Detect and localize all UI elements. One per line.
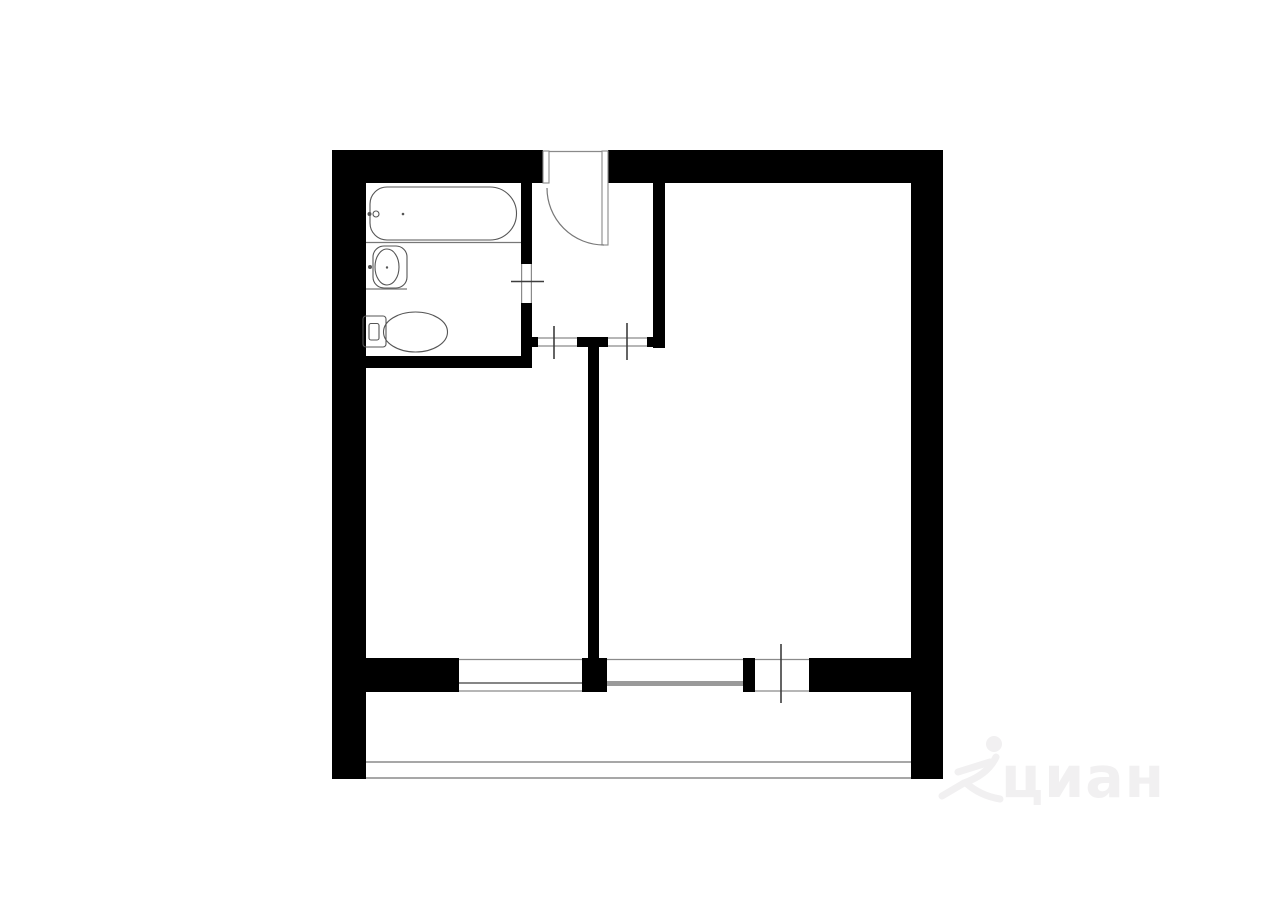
toilet-tank — [363, 316, 386, 347]
bathroom-fixtures — [363, 187, 521, 352]
bathtub-faucet-icon — [373, 211, 379, 217]
floor-plan-drawing: циан — [0, 0, 1280, 905]
floor-plan-page: циан — [0, 0, 1280, 905]
hallway-bottom-wall-b — [577, 337, 608, 347]
toilet-tank-inner — [369, 324, 379, 341]
logo-leg-left — [942, 783, 964, 796]
bathroom-door-opening — [511, 264, 544, 303]
watermark-text: циан — [1001, 745, 1165, 811]
hallway-bottom-wall-a — [532, 337, 538, 347]
hall-door-opening-left — [538, 326, 577, 359]
washbasin-drain-dot — [386, 266, 388, 268]
window-opening-2 — [607, 660, 743, 687]
window2-sill-band — [607, 681, 743, 686]
bathtub-drain-dot — [402, 213, 405, 216]
bathtub — [370, 187, 517, 240]
entrance-door-leaf — [602, 151, 608, 245]
bathtub-tap-icon — [368, 212, 372, 216]
bottom-wall-segment-left — [366, 658, 459, 692]
bathroom-bottom-wall — [332, 356, 532, 368]
bottom-wall-pier-1 — [582, 658, 607, 692]
bottom-wall-pier-2 — [743, 658, 755, 692]
entrance-door-jamb-left — [543, 151, 549, 183]
entrance-door-swing-arc — [547, 188, 604, 245]
bottom-wall-segment-right — [809, 658, 911, 692]
interior-walls — [332, 183, 665, 658]
toilet-bowl — [384, 312, 448, 352]
right-wall — [911, 150, 943, 779]
left-wall — [332, 150, 366, 779]
logo-leg-right — [966, 783, 1000, 799]
bathroom-right-wall-upper — [521, 183, 532, 264]
bottom-wall — [366, 644, 911, 703]
logo-head — [986, 736, 1002, 752]
hall-door-opening-right — [608, 323, 647, 360]
washbasin-outline — [373, 246, 407, 288]
window-opening-1 — [459, 660, 582, 692]
window-opening-3 — [755, 644, 809, 703]
watermark: циан — [942, 736, 1165, 811]
room-partition-wall — [588, 347, 599, 658]
entrance-door — [543, 151, 608, 245]
hallway-right-wall — [653, 183, 665, 348]
top-wall-right-segment — [608, 150, 943, 183]
balcony-outline — [366, 762, 911, 778]
hallway-bottom-wall-c — [647, 337, 665, 347]
washbasin-tap-icon — [368, 265, 372, 269]
cian-person-logo-icon — [942, 736, 1002, 799]
